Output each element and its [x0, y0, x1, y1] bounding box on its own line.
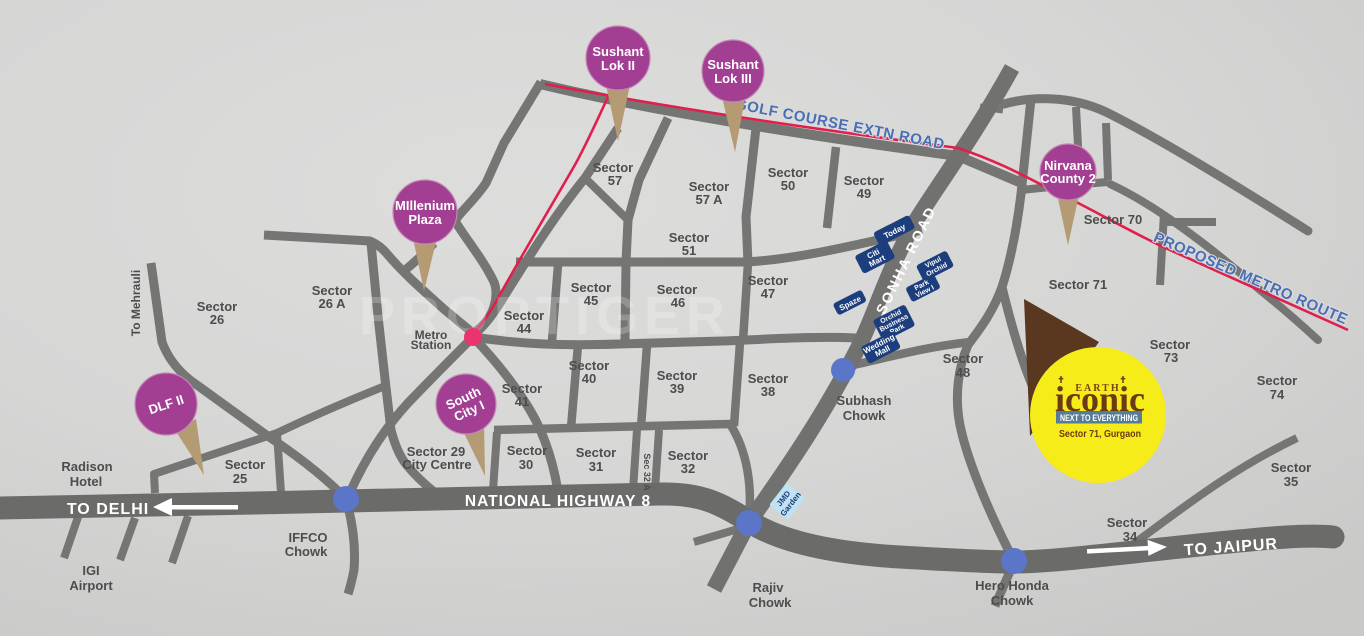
svg-text:NATIONAL HIGHWAY 8: NATIONAL HIGHWAY 8 — [465, 493, 651, 510]
svg-text:31: 31 — [589, 459, 603, 474]
svg-text:49: 49 — [857, 186, 871, 201]
svg-text:Airport: Airport — [69, 578, 113, 593]
svg-text:Rajiv: Rajiv — [752, 580, 784, 595]
svg-text:34: 34 — [1123, 529, 1138, 544]
svg-text:City Centre: City Centre — [402, 457, 471, 472]
svg-text:Sector 70: Sector 70 — [1084, 212, 1143, 227]
svg-text:48: 48 — [956, 365, 970, 380]
svg-text:Chowk: Chowk — [843, 408, 886, 423]
svg-text:46: 46 — [671, 295, 685, 310]
svg-text:47: 47 — [761, 286, 775, 301]
svg-text:35: 35 — [1284, 474, 1298, 489]
svg-text:74: 74 — [1270, 387, 1285, 402]
svg-text:40: 40 — [582, 371, 596, 386]
svg-text:NEXT TO EVERYTHING: NEXT TO EVERYTHING — [1060, 413, 1138, 423]
svg-text:Sector: Sector — [225, 457, 265, 472]
svg-text:Sec 32 A: Sec 32 A — [642, 453, 652, 491]
svg-text:Chowk: Chowk — [285, 544, 328, 559]
svg-text:To Mehrauli: To Mehrauli — [129, 270, 143, 336]
svg-text:Station: Station — [411, 338, 452, 352]
svg-text:Sector: Sector — [507, 443, 547, 458]
svg-text:Hotel: Hotel — [70, 474, 103, 489]
svg-text:Hero Honda: Hero Honda — [975, 578, 1049, 593]
svg-text:39: 39 — [670, 381, 684, 396]
svg-text:45: 45 — [584, 293, 598, 308]
svg-text:Sector 71, Gurgaon: Sector 71, Gurgaon — [1059, 428, 1141, 440]
svg-text:IFFCO: IFFCO — [289, 530, 328, 545]
svg-text:Sushant: Sushant — [592, 44, 644, 59]
svg-text:Sector: Sector — [1257, 373, 1297, 388]
svg-text:26: 26 — [210, 312, 224, 327]
svg-text:30: 30 — [519, 457, 533, 472]
svg-text:Subhash: Subhash — [837, 393, 892, 408]
svg-text:Sector: Sector — [943, 351, 983, 366]
svg-text:38: 38 — [761, 384, 775, 399]
svg-text:Lok III: Lok III — [714, 71, 752, 86]
svg-text:25: 25 — [233, 471, 247, 486]
svg-text:32: 32 — [681, 461, 695, 476]
svg-text:Chowk: Chowk — [991, 593, 1034, 608]
svg-text:73: 73 — [1164, 350, 1178, 365]
svg-text:44: 44 — [517, 321, 532, 336]
svg-text:Sector 71: Sector 71 — [1049, 277, 1108, 292]
svg-text:Sushant: Sushant — [707, 57, 759, 72]
svg-text:Plaza: Plaza — [408, 212, 442, 227]
svg-text:Sector: Sector — [1271, 460, 1311, 475]
svg-text:Sector: Sector — [576, 445, 616, 460]
svg-text:51: 51 — [682, 243, 696, 258]
svg-text:IGI: IGI — [82, 563, 99, 578]
svg-text:57: 57 — [608, 173, 622, 188]
svg-text:Chowk: Chowk — [749, 595, 792, 610]
svg-text:57 A: 57 A — [696, 192, 724, 207]
svg-text:Lok II: Lok II — [601, 58, 635, 73]
svg-text:Sector: Sector — [1107, 515, 1147, 530]
svg-text:26 A: 26 A — [319, 296, 347, 311]
svg-text:MIllenium: MIllenium — [395, 198, 455, 213]
svg-text:41: 41 — [515, 394, 529, 409]
svg-text:County 2: County 2 — [1040, 171, 1096, 186]
svg-text:TO DELHI: TO DELHI — [67, 501, 149, 518]
svg-text:Radison: Radison — [61, 459, 112, 474]
svg-text:50: 50 — [781, 178, 795, 193]
